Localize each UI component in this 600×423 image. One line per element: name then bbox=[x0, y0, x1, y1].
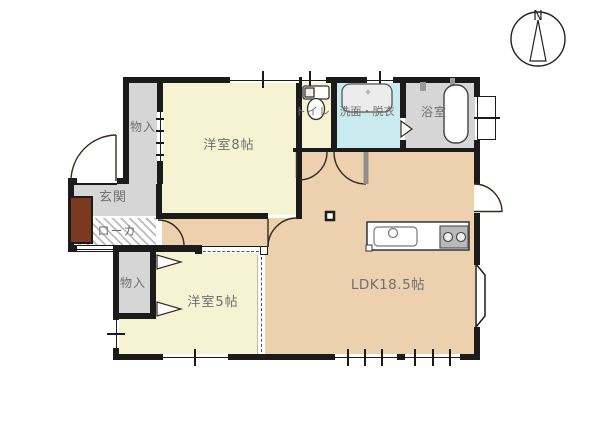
post-mark bbox=[326, 212, 334, 220]
toilet-door bbox=[297, 152, 328, 180]
label-washroom: 洗面・脱衣 bbox=[333, 106, 401, 117]
kitchen-counter bbox=[366, 222, 469, 251]
label-ldk: LDK18.5帖 bbox=[338, 279, 438, 293]
ldk-side-door bbox=[474, 184, 502, 212]
fixtures-overlay bbox=[0, 0, 600, 423]
label-entrance: 玄関 bbox=[89, 191, 137, 204]
floor-plan: 物入 洋室8帖 トイレ 洗面・脱衣 浴室 玄関 ローカ 物入 洋室5帖 LDK1… bbox=[0, 0, 600, 423]
compass-north-label: N bbox=[528, 10, 548, 23]
label-bathroom: 浴室 bbox=[410, 106, 458, 118]
hallway-door bbox=[158, 220, 184, 246]
bathroom-door-mark bbox=[401, 121, 412, 137]
label-storage-bottom: 物入 bbox=[116, 277, 150, 289]
label-storage-top: 物入 bbox=[126, 121, 160, 133]
label-bedroom-5: 洋室5帖 bbox=[173, 296, 253, 309]
washroom-door bbox=[334, 152, 369, 184]
label-bedroom-8: 洋室8帖 bbox=[189, 139, 269, 152]
bay-window bbox=[476, 264, 485, 327]
bedroom8-door bbox=[268, 218, 297, 247]
entrance-door bbox=[71, 135, 116, 181]
label-toilet: トイレ bbox=[291, 106, 335, 117]
label-hallway: ローカ bbox=[87, 225, 147, 237]
